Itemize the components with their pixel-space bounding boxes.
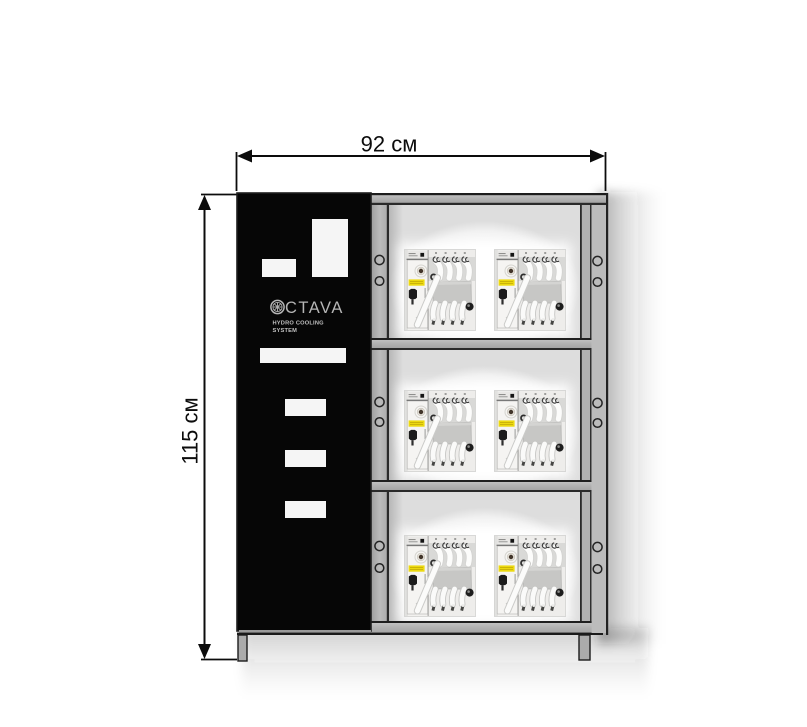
svg-text:SYSTEM: SYSTEM	[273, 328, 298, 334]
svg-text:CTAVA: CTAVA	[285, 299, 344, 317]
svg-text:92 см: 92 см	[361, 132, 418, 157]
svg-text:HYDRO COOLING: HYDRO COOLING	[273, 321, 325, 327]
svg-text:115 см: 115 см	[178, 397, 203, 464]
